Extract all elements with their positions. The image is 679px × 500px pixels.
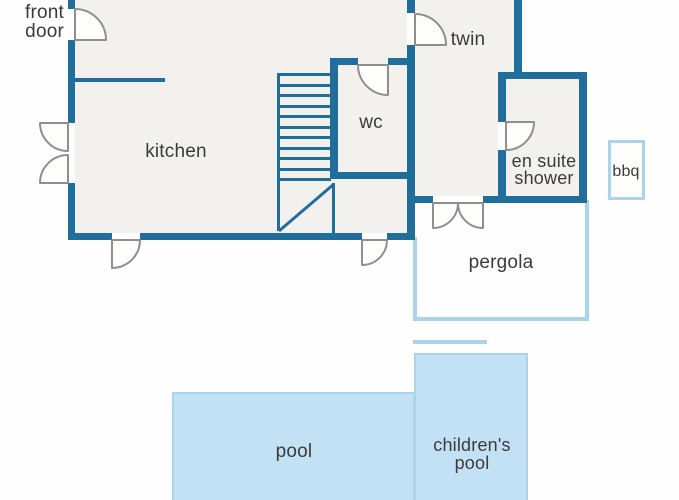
stair-tread xyxy=(279,178,331,181)
pergola-border-right xyxy=(585,200,589,321)
wc-label: wc xyxy=(331,113,411,133)
hall-exterior-door-swing xyxy=(362,240,387,265)
pergola-border-left xyxy=(413,237,417,321)
stair-tread xyxy=(279,94,331,97)
pergola-label: pergola xyxy=(441,253,561,273)
pergola-french-door-left-swing xyxy=(433,203,458,228)
front-door-label-line2: door xyxy=(0,22,64,41)
stair-tread xyxy=(279,84,331,87)
kitchen-french-door-bottom-swing xyxy=(40,155,68,183)
floor-plan: front door kitchen wc twin en suite show… xyxy=(0,0,679,500)
front-door-label-line1: front xyxy=(0,3,64,22)
wall-twin-left-b xyxy=(407,45,415,240)
wall-bottom-b xyxy=(140,233,362,240)
wall-left-bottom xyxy=(68,183,75,240)
stair-tread xyxy=(279,136,331,139)
pergola-border-bottom xyxy=(413,317,589,321)
twin-label: twin xyxy=(408,30,528,50)
wall-ensuite-bottom xyxy=(498,196,587,203)
stair-tread xyxy=(279,147,331,150)
wall-wc-bottom xyxy=(330,172,415,179)
wall-twin-bottom-b xyxy=(483,196,498,203)
wall-bottom-a xyxy=(68,233,112,240)
childrens-pool-label-line1: children's xyxy=(412,436,532,454)
childrens-pool-label: children's pool xyxy=(412,436,532,472)
kitchen-label: kitchen xyxy=(116,142,236,162)
stair-tread xyxy=(279,168,331,171)
bbq-label: bbq xyxy=(594,162,658,182)
kitchen-exterior-door-swing xyxy=(112,240,140,268)
stair-tread xyxy=(279,126,331,129)
wall-ensuite-top xyxy=(498,72,587,79)
wall-hall-thin xyxy=(332,183,335,233)
pool-step-line xyxy=(413,340,487,344)
wall-wc-top-a xyxy=(330,58,358,65)
wall-twin-bottom-a xyxy=(415,196,433,203)
ensuite-label: en suite shower xyxy=(484,153,604,187)
ensuite-label-line2: shower xyxy=(484,170,604,187)
stair-tread xyxy=(279,105,331,108)
stair-tread xyxy=(279,73,331,76)
wall-kitchen-divider xyxy=(72,78,165,82)
stair-tread xyxy=(279,157,331,160)
wall-twin-left-a xyxy=(407,0,415,13)
pergola-french-door-right-swing xyxy=(458,203,483,228)
kitchen-french-door-top-swing xyxy=(40,123,68,151)
childrens-pool-area xyxy=(414,353,528,500)
pool-label: pool xyxy=(234,442,354,462)
stair-tread xyxy=(279,115,331,118)
front-door-label: front door xyxy=(0,3,64,41)
wall-ensuite-left-a xyxy=(498,79,506,122)
wall-left-top xyxy=(68,0,75,9)
childrens-pool-label-line2: pool xyxy=(412,454,532,472)
